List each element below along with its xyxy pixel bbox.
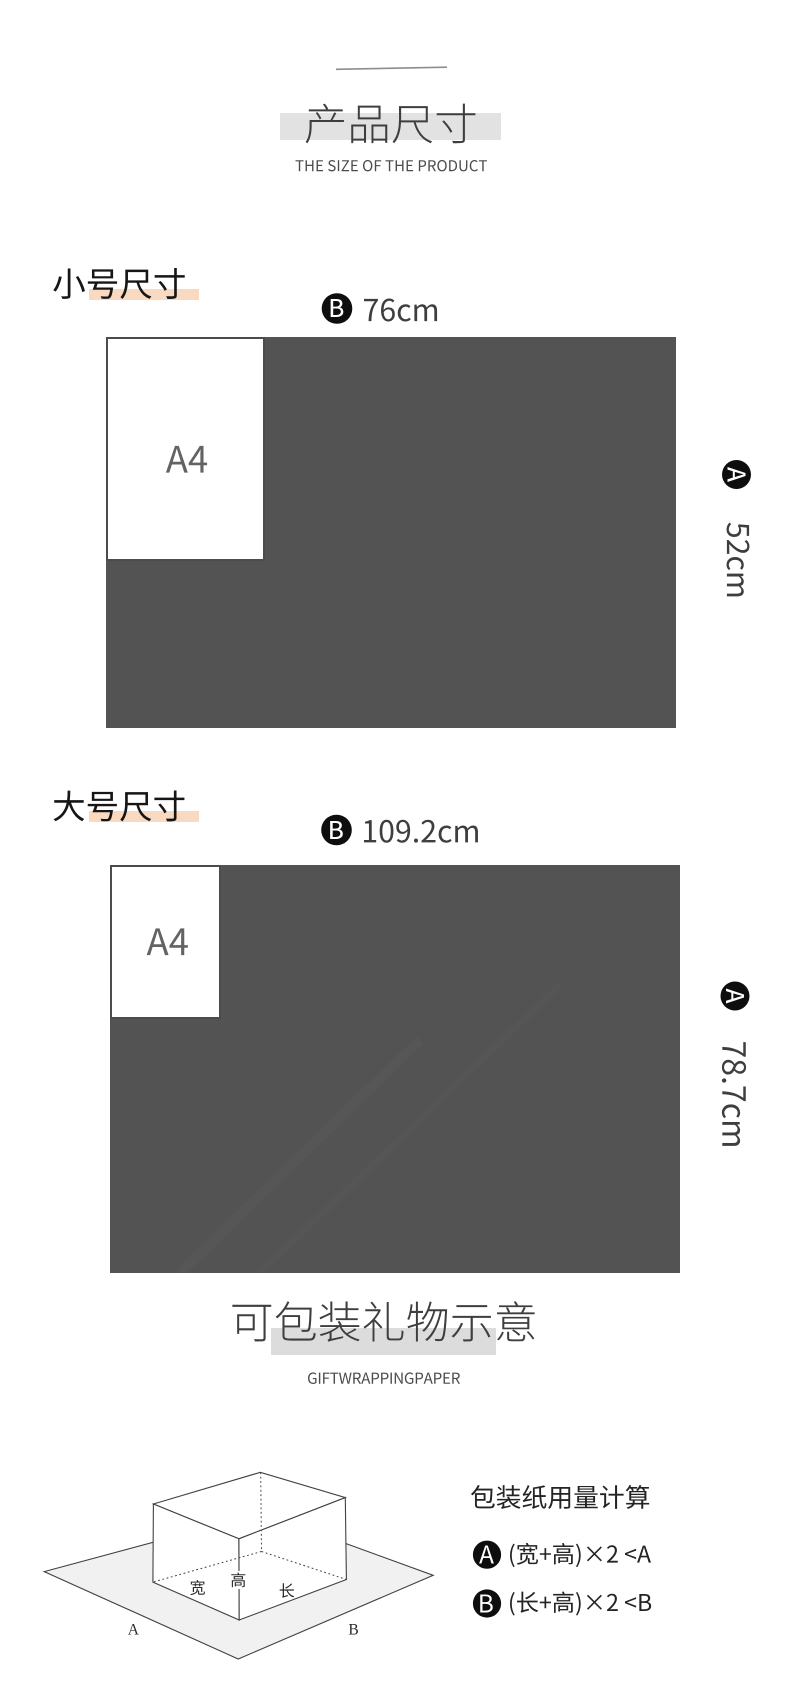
svg-text:A: A (128, 1622, 140, 1639)
svg-text:B: B (348, 1622, 358, 1639)
